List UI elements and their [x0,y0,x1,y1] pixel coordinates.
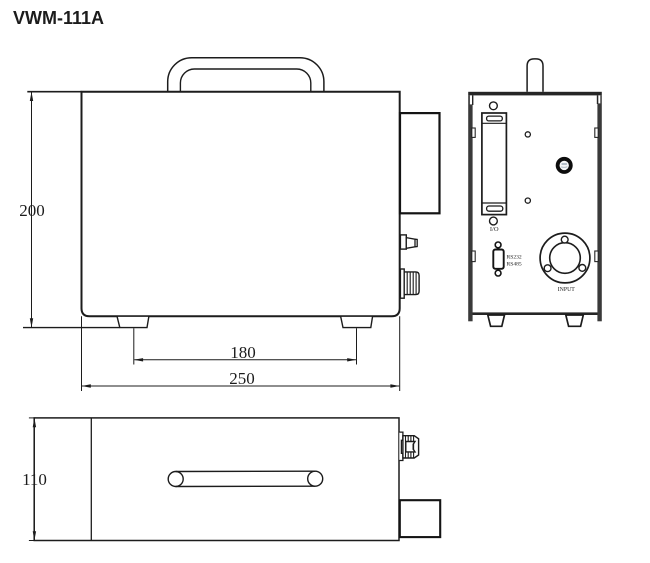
svg-text:RS485: RS485 [507,261,522,267]
svg-text:INPUT: INPUT [558,287,576,293]
svg-text:110: 110 [22,470,47,489]
svg-text:I/O: I/O [490,226,499,233]
svg-text:200: 200 [19,201,45,220]
svg-text:180: 180 [230,343,256,362]
svg-text:RS232: RS232 [507,255,522,261]
svg-text:250: 250 [229,369,255,388]
svg-text:VWM-111A: VWM-111A [13,8,104,28]
